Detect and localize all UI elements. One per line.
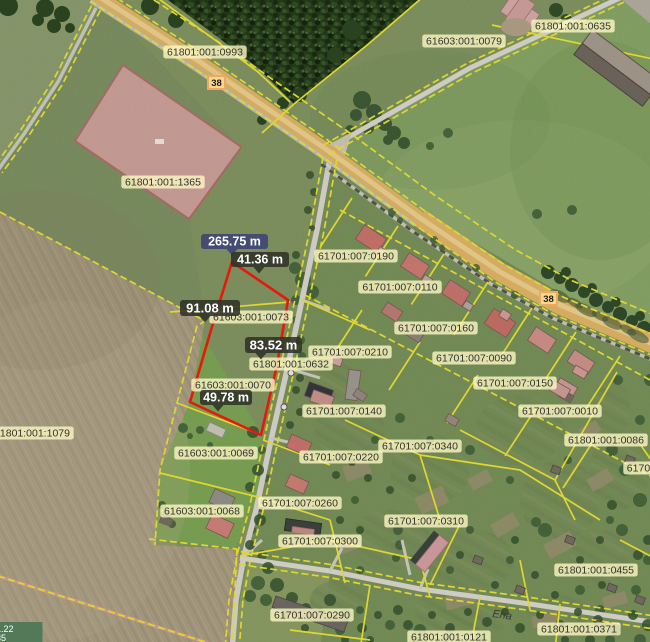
svg-text:61701:007:0: 61701:007:0 [627, 463, 650, 475]
svg-text:35: 35 [0, 633, 6, 642]
svg-text:61801:001:0455: 61801:001:0455 [558, 565, 634, 577]
svg-text:61801:001:0371: 61801:001:0371 [541, 624, 617, 636]
svg-text:61701:007:0310: 61701:007:0310 [388, 516, 464, 528]
svg-text:61701:007:0190: 61701:007:0190 [318, 251, 394, 263]
svg-text:61801:001:1365: 61801:001:1365 [125, 177, 201, 189]
svg-text:41.36 m: 41.36 m [237, 253, 283, 267]
svg-text:61801:001:0086: 61801:001:0086 [568, 435, 644, 447]
svg-text:61701:007:0140: 61701:007:0140 [306, 406, 382, 418]
svg-text:61603:001:0068: 61603:001:0068 [164, 506, 240, 518]
svg-text:265.75 m: 265.75 m [208, 235, 261, 249]
svg-text:61801:001:0635: 61801:001:0635 [535, 21, 611, 33]
svg-text:38: 38 [543, 294, 554, 305]
svg-text:61701:007:0010: 61701:007:0010 [522, 406, 598, 418]
svg-text:49.78 m: 49.78 m [203, 391, 249, 405]
svg-text:61701:007:0260: 61701:007:0260 [262, 498, 338, 510]
svg-text:61701:007:0150: 61701:007:0150 [477, 378, 553, 390]
svg-text:61701:007:0220: 61701:007:0220 [303, 452, 379, 464]
svg-text:61701:007:0160: 61701:007:0160 [398, 323, 474, 335]
svg-text:61701:007:0210: 61701:007:0210 [312, 347, 388, 359]
svg-text:61701:007:0340: 61701:007:0340 [382, 441, 458, 453]
svg-text:61603:001:0069: 61603:001:0069 [178, 448, 254, 460]
svg-text:61801:001:0121: 61801:001:0121 [411, 632, 487, 642]
svg-text:38: 38 [211, 78, 222, 89]
svg-text:61701:007:0300: 61701:007:0300 [282, 536, 358, 548]
svg-text:61603:001:0079: 61603:001:0079 [426, 36, 502, 48]
svg-text:61801:001:0632: 61801:001:0632 [253, 359, 329, 371]
svg-text:61701:007:0090: 61701:007:0090 [436, 353, 512, 365]
svg-text:61801:001:1079: 61801:001:1079 [0, 428, 70, 440]
svg-text:91.08 m: 91.08 m [186, 301, 234, 316]
svg-text:61701:007:0110: 61701:007:0110 [362, 282, 437, 294]
svg-text:61701:007:0290: 61701:007:0290 [274, 610, 350, 622]
svg-text:61801:001:0993: 61801:001:0993 [167, 47, 243, 59]
svg-text:83.52 m: 83.52 m [250, 338, 298, 353]
